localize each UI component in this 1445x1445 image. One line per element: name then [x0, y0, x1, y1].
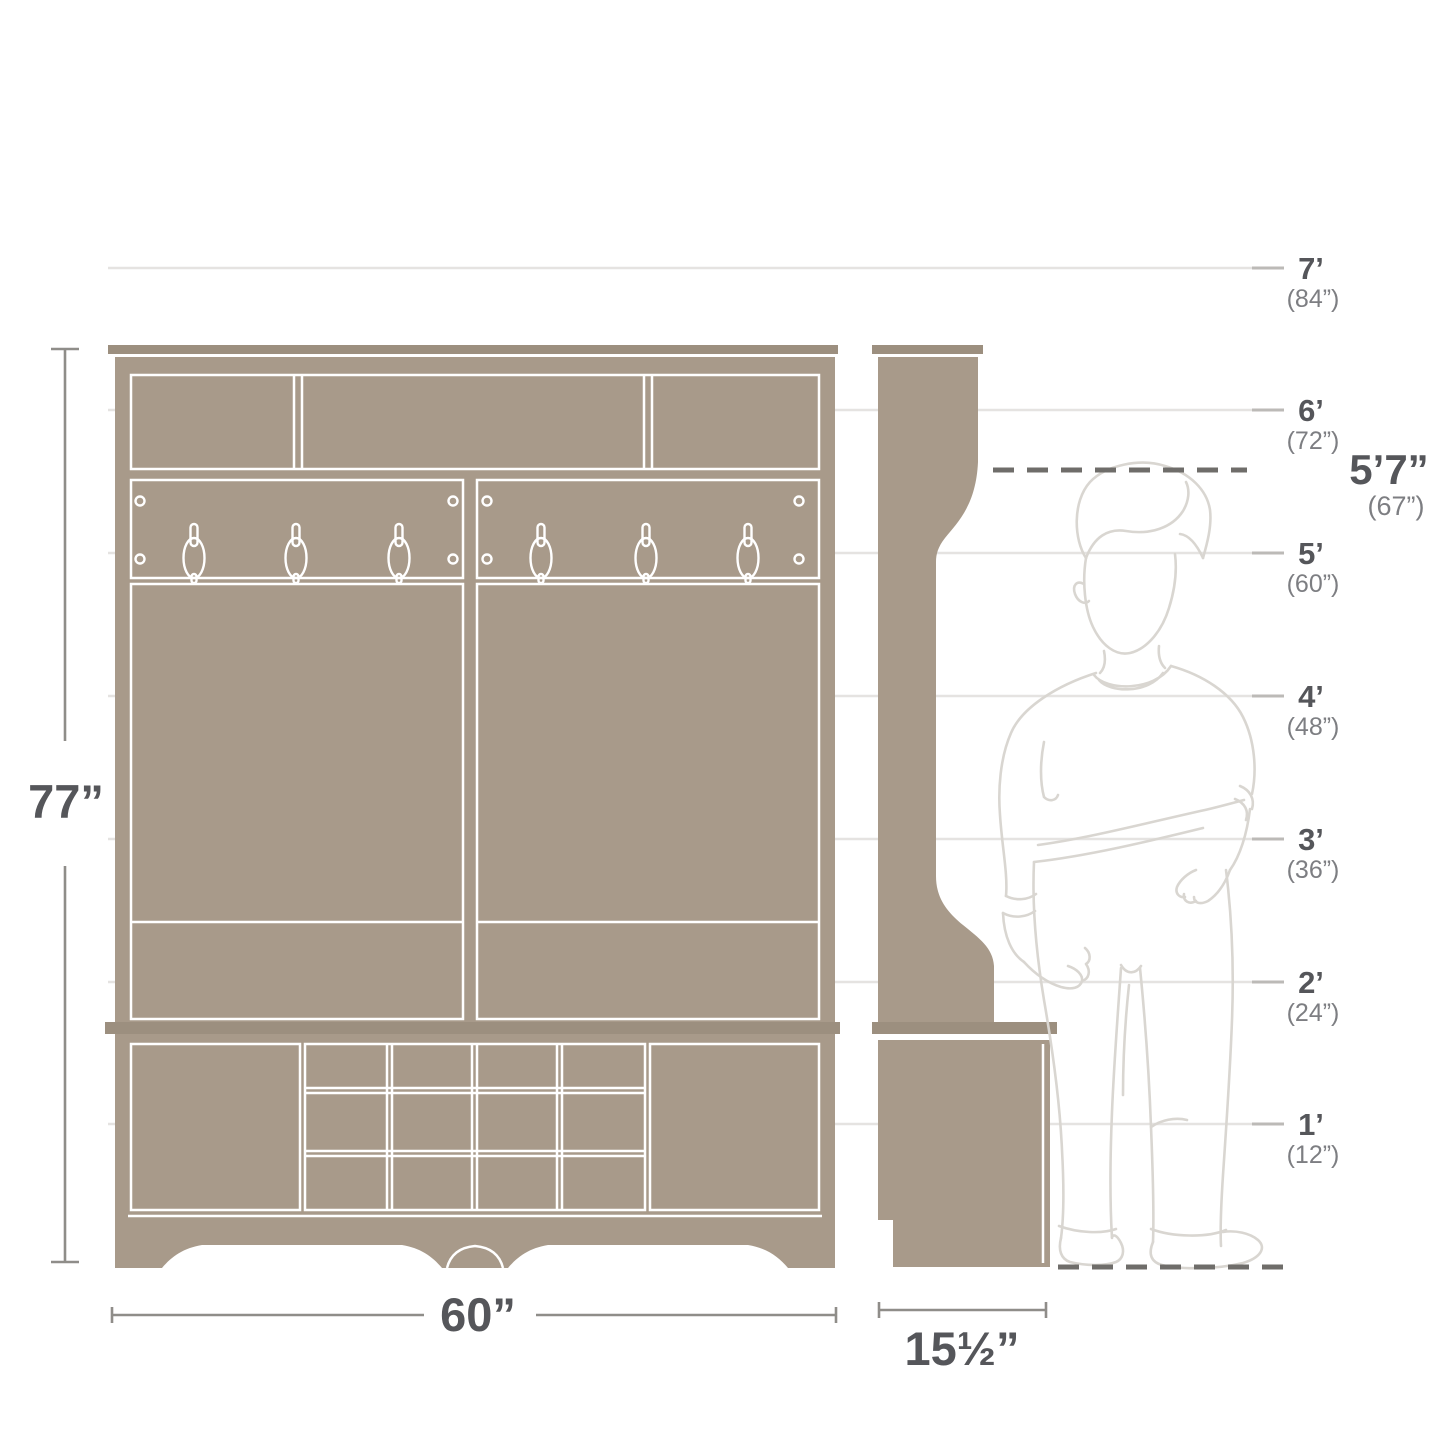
side-upper-profile: [878, 357, 994, 1022]
front-top-cap: [108, 345, 838, 354]
dimension-depth-label: 15½”: [905, 1322, 1020, 1375]
person-right-hand: [1176, 870, 1230, 903]
scale-2ft-feet: 2’: [1298, 965, 1324, 1000]
person-face: [1084, 554, 1176, 654]
scale-6ft-feet: 6’: [1298, 393, 1324, 428]
scale-5ft-feet: 5’: [1298, 536, 1324, 571]
side-top-cap: [872, 345, 983, 354]
person-right-leg-outer: [1221, 870, 1233, 1246]
person-neck: [1100, 646, 1165, 673]
person-hair: [1077, 463, 1211, 558]
person-crotch: [1121, 965, 1141, 972]
person-hair-sweep: [1086, 482, 1188, 558]
scale-5ft-inches: (60”): [1287, 570, 1340, 598]
scale-1ft-inches: (12”): [1287, 1141, 1340, 1169]
side-bench: [878, 1040, 1050, 1267]
scale-1ft-feet: 1’: [1298, 1107, 1324, 1142]
person-left-shoe: [1060, 1235, 1123, 1265]
scale-6ft-inches: (72”): [1287, 427, 1340, 455]
front-bench-cap: [105, 1022, 840, 1034]
person-left-leg-inner: [1111, 968, 1122, 1238]
person-chest-crease: [1041, 742, 1058, 800]
person-left-arm: [999, 673, 1096, 896]
person-right-leg-inner: [1140, 968, 1153, 1242]
dimension-width-label: 60”: [440, 1288, 516, 1341]
person-height-inches: (67”): [1367, 491, 1424, 521]
side-bench-cap: [872, 1022, 1057, 1034]
dimension-depth-line: [879, 1302, 1046, 1318]
person-ankle-cuffs: [1059, 1226, 1226, 1236]
person-left-forearm: [1003, 913, 1024, 962]
scale-7ft-feet: 7’: [1298, 251, 1324, 286]
dimension-height-label: 77”: [28, 775, 104, 828]
scale-4ft-feet: 4’: [1298, 679, 1324, 714]
scale-3ft-feet: 3’: [1298, 822, 1324, 857]
person-hem: [1034, 828, 1203, 862]
scale-4ft-inches: (48”): [1287, 713, 1340, 741]
diagram-canvas: 77” 60” 15½” 7’ (84”) 6’ (72”) 5’7” (67”…: [0, 0, 1445, 1445]
grid-ticks: [1252, 268, 1284, 1124]
scale-3ft-inches: (36”): [1287, 856, 1340, 884]
person-collar: [1094, 666, 1171, 689]
scale-7ft-inches: (84”): [1287, 285, 1340, 313]
person-height-label: 5’7”: [1349, 446, 1428, 493]
front-body: [115, 357, 835, 1220]
height-scale-labels: 7’ (84”) 6’ (72”) 5’7” (67”) 5’ (60”) 4’…: [1287, 251, 1429, 1169]
person-left-cuff: [1003, 894, 1036, 917]
person-leg-crease: [1123, 985, 1187, 1127]
side-view: [872, 345, 1057, 1267]
front-apron: [115, 1218, 835, 1268]
person-right-arm: [1171, 666, 1255, 794]
dimension-diagram: 77” 60” 15½” 7’ (84”) 6’ (72”) 5’7” (67”…: [0, 0, 1445, 1445]
person-right-shoe: [1151, 1231, 1262, 1268]
person-hair-inner: [1180, 534, 1203, 558]
front-view: [105, 345, 840, 1268]
scale-2ft-inches: (24”): [1287, 999, 1340, 1027]
